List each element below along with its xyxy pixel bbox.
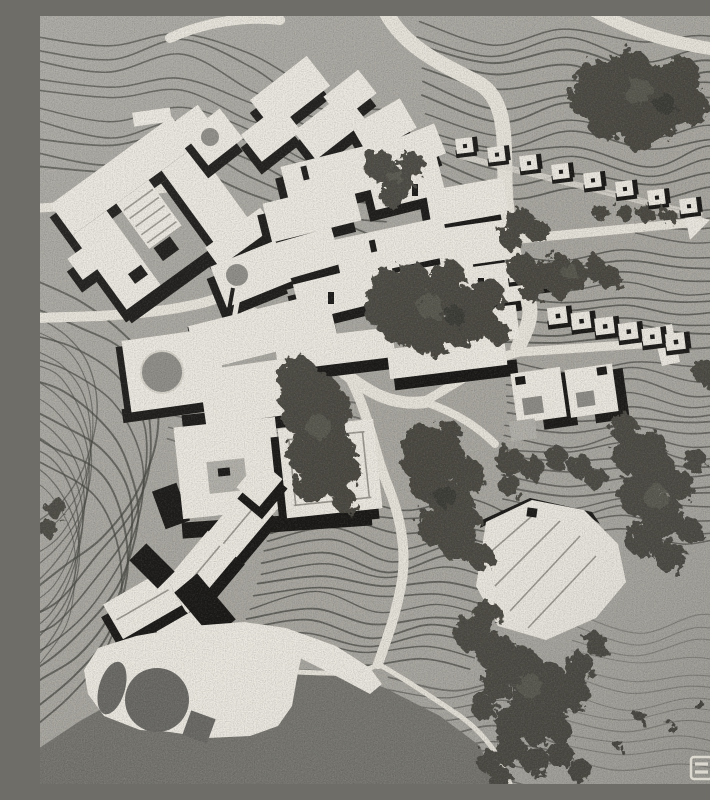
site-model-photo: Black-and-white aerial photograph of an … [40, 16, 710, 784]
site-model-canvas [40, 16, 710, 784]
film-grain-light [40, 16, 710, 784]
